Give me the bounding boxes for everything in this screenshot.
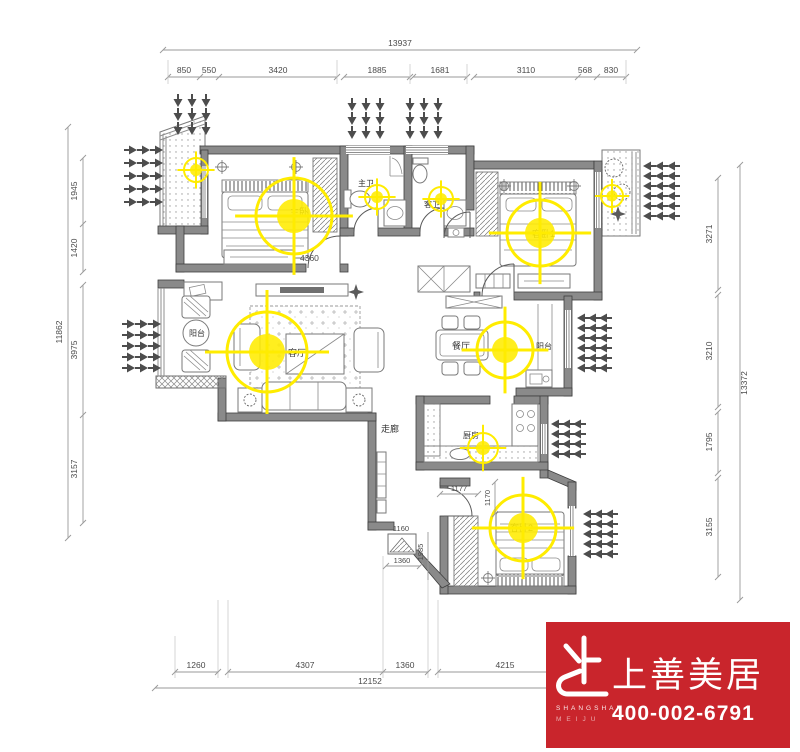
dim-master-width: 4360 <box>300 253 319 263</box>
svg-text:1681: 1681 <box>431 65 450 75</box>
svg-text:568: 568 <box>578 65 592 75</box>
furniture <box>182 156 630 586</box>
stove <box>512 404 538 446</box>
arrows-right-bedroom3 <box>583 510 618 559</box>
shaft <box>388 534 416 554</box>
kitchen-sink <box>450 449 470 460</box>
svg-text:1360: 1360 <box>396 660 415 670</box>
svg-text:11862: 11862 <box>54 320 64 343</box>
svg-text:1360: 1360 <box>394 556 411 565</box>
svg-text:830: 830 <box>604 65 618 75</box>
chair <box>464 316 480 329</box>
svg-text:1260: 1260 <box>187 660 206 670</box>
svg-text:1885: 1885 <box>368 65 387 75</box>
arrows-top-bath1 <box>348 98 385 139</box>
arrows-left-lower <box>122 320 161 373</box>
svg-text:850: 850 <box>177 65 191 75</box>
brand-name: 上善美居 <box>612 656 764 695</box>
floor-plan-page: 13937 850 550 3420 1885 1681 3110 568 83… <box>0 0 800 752</box>
brand-name-en2: MEIJU <box>556 716 601 723</box>
svg-text:1985: 1985 <box>416 544 425 561</box>
dim-top-total: 13937 <box>388 38 412 48</box>
shoe-cabinet <box>476 274 510 288</box>
phone-number: 400-002-6791 <box>612 702 755 725</box>
side-table <box>346 388 372 412</box>
bed-headboard <box>500 182 576 194</box>
toilet-tank <box>413 158 428 164</box>
wardrobe <box>476 172 498 236</box>
svg-text:1170: 1170 <box>483 490 492 506</box>
svg-text:1177: 1177 <box>451 484 467 493</box>
chair <box>442 316 458 329</box>
svg-text:1795: 1795 <box>704 432 714 451</box>
svg-text:3271: 3271 <box>704 224 714 243</box>
hatched-wall <box>156 376 226 388</box>
svg-text:12152: 12152 <box>358 676 382 686</box>
arrows-left-upper <box>124 146 163 207</box>
svg-text:3157: 3157 <box>69 459 79 478</box>
svg-text:3110: 3110 <box>517 65 536 75</box>
label-corridor: 走廊 <box>381 423 399 434</box>
svg-text:4307: 4307 <box>296 660 315 670</box>
svg-text:1160: 1160 <box>393 524 409 533</box>
arrows-right-balcony <box>643 162 680 221</box>
bed-headboard <box>496 574 564 586</box>
arrows-right-dining <box>577 314 612 373</box>
chair <box>464 362 480 375</box>
floor-plan-drawing: 13937 850 550 3420 1885 1681 3110 568 83… <box>0 0 800 752</box>
svg-text:1945: 1945 <box>69 181 79 200</box>
corridor-furniture <box>377 452 386 513</box>
svg-text:3210: 3210 <box>704 341 714 360</box>
label-balcony-left: 阳台 <box>189 328 205 338</box>
svg-text:3975: 3975 <box>69 340 79 359</box>
chair <box>442 362 458 375</box>
svg-text:550: 550 <box>202 65 216 75</box>
svg-text:13372: 13372 <box>739 371 749 395</box>
dimension-chain-right: 13372 3271 3210 1795 3155 <box>704 162 749 603</box>
svg-text:3420: 3420 <box>269 65 288 75</box>
logo-block: 上善美居 SHANGSHAN MEIJU 400-002-6791 <box>546 622 790 748</box>
svg-text:3155: 3155 <box>704 517 714 536</box>
toilet <box>413 165 427 183</box>
master-bath-fixtures <box>344 156 406 226</box>
svg-text:1420: 1420 <box>69 238 79 257</box>
dimension-chain-top: 13937 850 550 3420 1885 1681 3110 568 83… <box>160 38 640 84</box>
svg-text:4215: 4215 <box>496 660 515 670</box>
entry-cabinets <box>418 266 510 308</box>
arrows-top-bath2 <box>406 98 443 139</box>
sofa <box>262 382 346 410</box>
arrows-top-left <box>174 94 211 135</box>
arrows-right-kitchen <box>551 420 586 459</box>
armchair-right <box>354 328 384 372</box>
dimension-chain-left: 11862 1945 1420 3975 3157 <box>54 124 86 541</box>
